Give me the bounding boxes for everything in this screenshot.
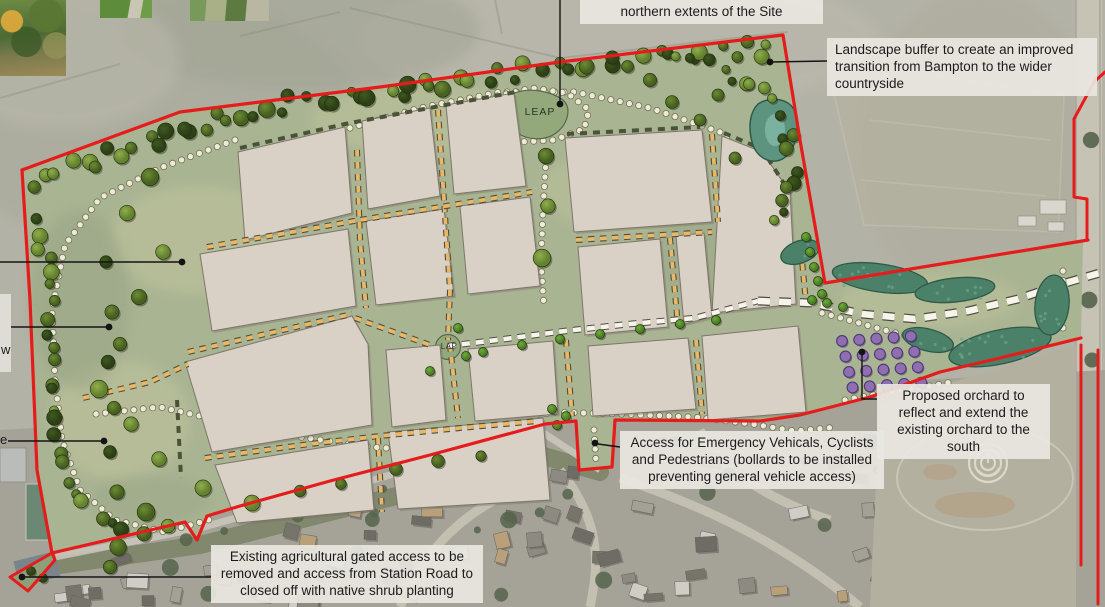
tree xyxy=(31,213,42,224)
tree xyxy=(64,478,75,489)
orchard-tree xyxy=(854,334,865,345)
tree xyxy=(103,560,116,573)
tree xyxy=(478,347,487,356)
tree xyxy=(675,319,684,328)
leader-dot xyxy=(592,440,599,447)
tree xyxy=(809,262,818,271)
tree xyxy=(579,59,594,74)
leader-line xyxy=(770,61,827,62)
tree xyxy=(817,289,826,298)
tree xyxy=(28,181,41,194)
tree xyxy=(110,539,126,555)
tree xyxy=(178,122,192,136)
callout-fragment-left-2: e xyxy=(0,432,7,447)
tree xyxy=(434,81,450,97)
tree xyxy=(595,329,604,338)
tree xyxy=(113,337,126,350)
tree xyxy=(541,199,555,213)
tree xyxy=(55,455,69,469)
tree xyxy=(233,110,248,125)
tree xyxy=(119,205,134,220)
callout-text: Landscape buffer to create an improved t… xyxy=(835,42,1073,91)
tree xyxy=(90,380,108,398)
tree xyxy=(195,480,211,496)
precedent-photo-park-trees xyxy=(0,0,66,76)
tree xyxy=(125,142,136,153)
tree xyxy=(156,245,171,260)
tree xyxy=(635,324,644,333)
development-parcel xyxy=(446,93,526,194)
tree xyxy=(767,94,776,103)
development-parcel xyxy=(386,345,446,427)
tree xyxy=(124,417,138,431)
tree xyxy=(66,153,81,168)
leader-dot xyxy=(19,574,26,581)
tree xyxy=(722,65,730,73)
orchard-tree xyxy=(840,351,851,362)
tree xyxy=(563,64,574,75)
callout-text: Existing agricultural gated access to be… xyxy=(221,549,473,598)
tree xyxy=(49,342,60,353)
tree xyxy=(277,108,287,118)
tree xyxy=(107,401,120,414)
orchard-tree xyxy=(875,349,886,360)
orchard-tree xyxy=(912,362,923,373)
tree xyxy=(432,455,445,468)
tree xyxy=(248,111,258,121)
tree xyxy=(685,53,694,62)
leader-dot xyxy=(859,349,866,356)
tree xyxy=(131,289,146,304)
tree xyxy=(538,148,554,164)
tree xyxy=(324,96,339,111)
precedent-photo-green-street xyxy=(100,0,152,18)
orchard-tree xyxy=(844,367,855,378)
tree xyxy=(801,232,810,241)
tree xyxy=(729,152,741,164)
tree xyxy=(47,428,61,442)
leader-dot xyxy=(179,259,186,266)
development-parcel xyxy=(578,239,668,335)
tree xyxy=(152,138,166,152)
tree xyxy=(49,295,60,306)
development-parcel xyxy=(702,326,806,420)
callout-landscape-buffer: Landscape buffer to create an improved t… xyxy=(827,38,1097,96)
tree xyxy=(100,142,113,155)
tree xyxy=(775,110,785,120)
development-parcel xyxy=(588,338,696,416)
tree xyxy=(41,312,55,326)
callout-text: Access for Emergency Vehicals, Cyclists … xyxy=(630,435,873,484)
orchard-tree xyxy=(837,336,848,347)
tree xyxy=(743,78,754,89)
development-parcel xyxy=(565,130,712,232)
tree xyxy=(711,315,720,324)
orchard-tree xyxy=(905,331,916,342)
tree xyxy=(758,82,770,94)
leap-play-area-label: LEAP xyxy=(518,106,562,118)
development-parcel xyxy=(460,197,540,294)
orchard-tree xyxy=(878,364,889,375)
tree xyxy=(547,404,556,413)
tree xyxy=(561,411,570,420)
tree xyxy=(838,302,847,311)
tree xyxy=(703,54,715,66)
tree xyxy=(622,60,634,72)
development-parcel xyxy=(362,108,440,209)
tree xyxy=(47,410,62,425)
tree xyxy=(665,95,678,108)
tree xyxy=(694,114,706,126)
leader-dot xyxy=(106,324,113,331)
tree xyxy=(45,279,55,289)
callout-text: Proposed orchard to reflect and extend t… xyxy=(897,388,1030,454)
tree xyxy=(476,451,486,461)
orchard-tree xyxy=(871,333,882,344)
tree xyxy=(201,124,213,136)
tree xyxy=(32,228,48,244)
tree xyxy=(510,75,519,84)
tree xyxy=(822,298,831,307)
tree xyxy=(48,353,60,365)
tree xyxy=(732,52,743,63)
tree xyxy=(101,355,115,369)
orchard-tree xyxy=(864,381,875,392)
tree xyxy=(461,351,470,360)
tree xyxy=(533,249,551,267)
tree xyxy=(89,161,101,173)
tree xyxy=(157,123,173,139)
tree xyxy=(712,89,724,101)
callout-emergency-access: Access for Emergency Vehicals, Cyclists … xyxy=(620,431,884,489)
orchard-tree xyxy=(847,382,858,393)
tree xyxy=(779,141,793,155)
orchard-tree xyxy=(892,348,903,359)
orchard-tree xyxy=(909,346,920,357)
tree xyxy=(47,383,57,393)
tree xyxy=(776,194,789,207)
masterplan-figure: northern extents of the Site Landscape b… xyxy=(0,0,1105,607)
callout-proposed-orchard: Proposed orchard to reflect and extend t… xyxy=(877,384,1050,459)
lap-play-area-label: LAP xyxy=(435,342,463,351)
tree xyxy=(813,276,822,285)
tree xyxy=(220,115,231,126)
tree xyxy=(643,73,656,86)
precedent-photo-planting xyxy=(190,0,269,21)
tree xyxy=(425,366,434,375)
tree xyxy=(780,181,792,193)
leader-dot xyxy=(101,438,108,445)
tree xyxy=(110,485,124,499)
tree xyxy=(358,89,375,106)
tree xyxy=(141,168,159,186)
tree xyxy=(453,323,462,332)
tree xyxy=(761,40,770,49)
tree xyxy=(43,264,59,280)
tree xyxy=(105,305,119,319)
orchard-tree xyxy=(895,363,906,374)
leader-dot xyxy=(767,59,774,66)
tree xyxy=(807,295,816,304)
tree xyxy=(805,247,814,256)
development-parcel xyxy=(366,209,454,305)
tree xyxy=(152,452,167,467)
callout-northern-extents: northern extents of the Site xyxy=(580,0,823,24)
tree xyxy=(780,208,789,217)
callout-text: northern extents of the Site xyxy=(620,4,782,19)
callout-fragment-left: w xyxy=(0,294,11,372)
orchard-tree xyxy=(888,332,899,343)
tree xyxy=(517,340,526,349)
tree xyxy=(769,215,779,225)
tree xyxy=(104,446,117,459)
tree xyxy=(47,168,58,179)
tree xyxy=(671,52,680,61)
tree xyxy=(42,330,52,340)
tree xyxy=(74,493,89,508)
tree xyxy=(728,77,736,85)
tree xyxy=(137,503,155,521)
callout-agricultural-access: Existing agricultural gated access to be… xyxy=(211,545,483,603)
tree xyxy=(485,76,497,88)
tree xyxy=(555,334,564,343)
tree xyxy=(31,243,44,256)
